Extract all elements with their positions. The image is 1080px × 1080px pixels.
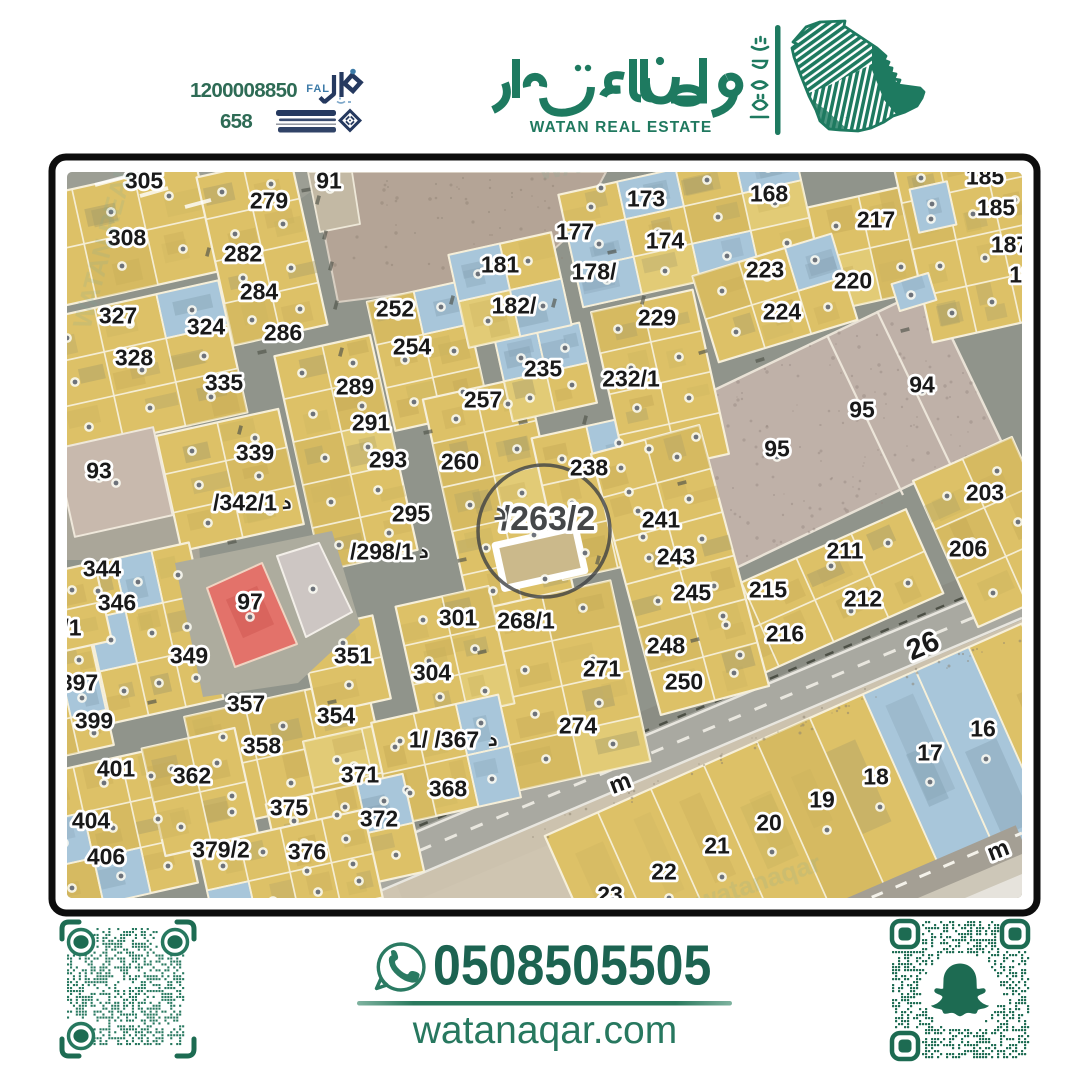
- svg-text:241: 241: [642, 507, 681, 533]
- svg-text:203: 203: [966, 480, 1004, 506]
- svg-text:18: 18: [863, 764, 889, 790]
- svg-text:19: 19: [809, 787, 835, 813]
- svg-text:173: 173: [627, 186, 665, 212]
- svg-text:379/2: 379/2: [192, 837, 250, 863]
- svg-text:178/: 178/: [572, 259, 617, 285]
- svg-text:291: 291: [352, 410, 391, 436]
- svg-text:1/ /367: 1/ /367: [409, 727, 479, 753]
- svg-text:217: 217: [857, 207, 895, 233]
- svg-text:22: 22: [651, 859, 677, 885]
- svg-text:168: 168: [750, 181, 789, 207]
- svg-text:346: 346: [98, 590, 136, 616]
- svg-text:185: 185: [977, 195, 1016, 221]
- svg-text:301: 301: [439, 605, 478, 631]
- svg-text:/342/1: /342/1: [213, 490, 277, 516]
- svg-text:220: 220: [834, 268, 872, 294]
- svg-text:250: 250: [665, 669, 703, 695]
- svg-text:232/1: 232/1: [602, 366, 660, 392]
- svg-text:399: 399: [75, 708, 113, 734]
- svg-text:324: 324: [187, 314, 226, 340]
- svg-text:/298/1: /298/1: [350, 539, 414, 565]
- svg-text:371: 371: [341, 762, 380, 788]
- svg-text:375: 375: [270, 795, 309, 821]
- svg-text:339: 339: [236, 440, 274, 466]
- svg-text:21: 21: [704, 833, 730, 859]
- svg-text:284: 284: [240, 279, 279, 305]
- svg-text:372: 372: [360, 806, 398, 832]
- svg-text:357: 357: [227, 691, 265, 717]
- svg-text:1200008850: 1200008850: [190, 79, 297, 102]
- svg-text:368: 368: [429, 776, 468, 802]
- svg-text:216: 216: [766, 621, 804, 647]
- svg-text:406: 406: [87, 844, 125, 870]
- svg-text:243: 243: [657, 544, 695, 570]
- svg-text:224: 224: [763, 299, 802, 325]
- svg-text:286: 286: [264, 320, 302, 346]
- svg-text:97: 97: [237, 589, 263, 615]
- svg-text:349: 349: [170, 643, 208, 669]
- svg-text:358: 358: [243, 733, 282, 759]
- svg-text:watanaqar.com: watanaqar.com: [412, 1009, 678, 1052]
- svg-text:93: 93: [86, 458, 112, 484]
- svg-text:94: 94: [909, 372, 935, 398]
- svg-text:404: 404: [72, 808, 111, 834]
- svg-text:279: 279: [250, 188, 288, 214]
- svg-text:268/1: 268/1: [497, 608, 555, 634]
- svg-text:351: 351: [334, 643, 373, 669]
- svg-text:658: 658: [220, 110, 252, 133]
- svg-text:248: 248: [647, 633, 686, 659]
- svg-text:182/: 182/: [492, 293, 537, 319]
- svg-text:274: 274: [559, 713, 598, 739]
- svg-text:245: 245: [673, 580, 712, 606]
- svg-text:95: 95: [764, 436, 790, 462]
- svg-text:257: 257: [464, 387, 502, 413]
- svg-text:293: 293: [369, 447, 407, 473]
- svg-text:260: 260: [441, 449, 479, 475]
- svg-text:328: 328: [115, 345, 154, 371]
- svg-text:238: 238: [570, 455, 609, 481]
- svg-text:304: 304: [413, 660, 452, 686]
- svg-text:235: 235: [524, 356, 563, 382]
- svg-text:174: 174: [646, 228, 685, 254]
- svg-text:211: 211: [826, 538, 863, 564]
- svg-text:376: 376: [288, 839, 326, 865]
- svg-text:FAL: FAL: [306, 83, 330, 95]
- svg-text:212: 212: [844, 586, 882, 612]
- svg-text:223: 223: [746, 257, 784, 283]
- svg-text:327: 327: [99, 303, 137, 329]
- svg-text:0508505505: 0508505505: [433, 933, 711, 997]
- svg-text:254: 254: [393, 334, 432, 360]
- svg-text:181: 181: [481, 252, 520, 278]
- svg-text:289: 289: [336, 374, 374, 400]
- svg-text:401: 401: [97, 756, 136, 782]
- svg-text:16: 16: [970, 716, 996, 742]
- svg-text:344: 344: [83, 556, 122, 582]
- svg-text:229: 229: [638, 305, 676, 331]
- svg-text:252: 252: [376, 296, 414, 322]
- svg-text:WATAN REAL ESTATE: WATAN REAL ESTATE: [530, 119, 713, 136]
- svg-text:17: 17: [917, 740, 943, 766]
- svg-text:354: 354: [317, 703, 356, 729]
- svg-text:95: 95: [849, 397, 875, 423]
- svg-text:20: 20: [756, 810, 782, 836]
- svg-text:206: 206: [949, 536, 987, 562]
- svg-text:295: 295: [392, 501, 431, 527]
- svg-text:/263/2: /263/2: [501, 500, 596, 538]
- svg-text:362: 362: [173, 763, 211, 789]
- svg-text:271: 271: [583, 656, 622, 682]
- svg-text:282: 282: [224, 241, 262, 267]
- svg-text:335: 335: [205, 370, 244, 396]
- svg-text:177: 177: [556, 219, 594, 245]
- svg-text:215: 215: [749, 577, 788, 603]
